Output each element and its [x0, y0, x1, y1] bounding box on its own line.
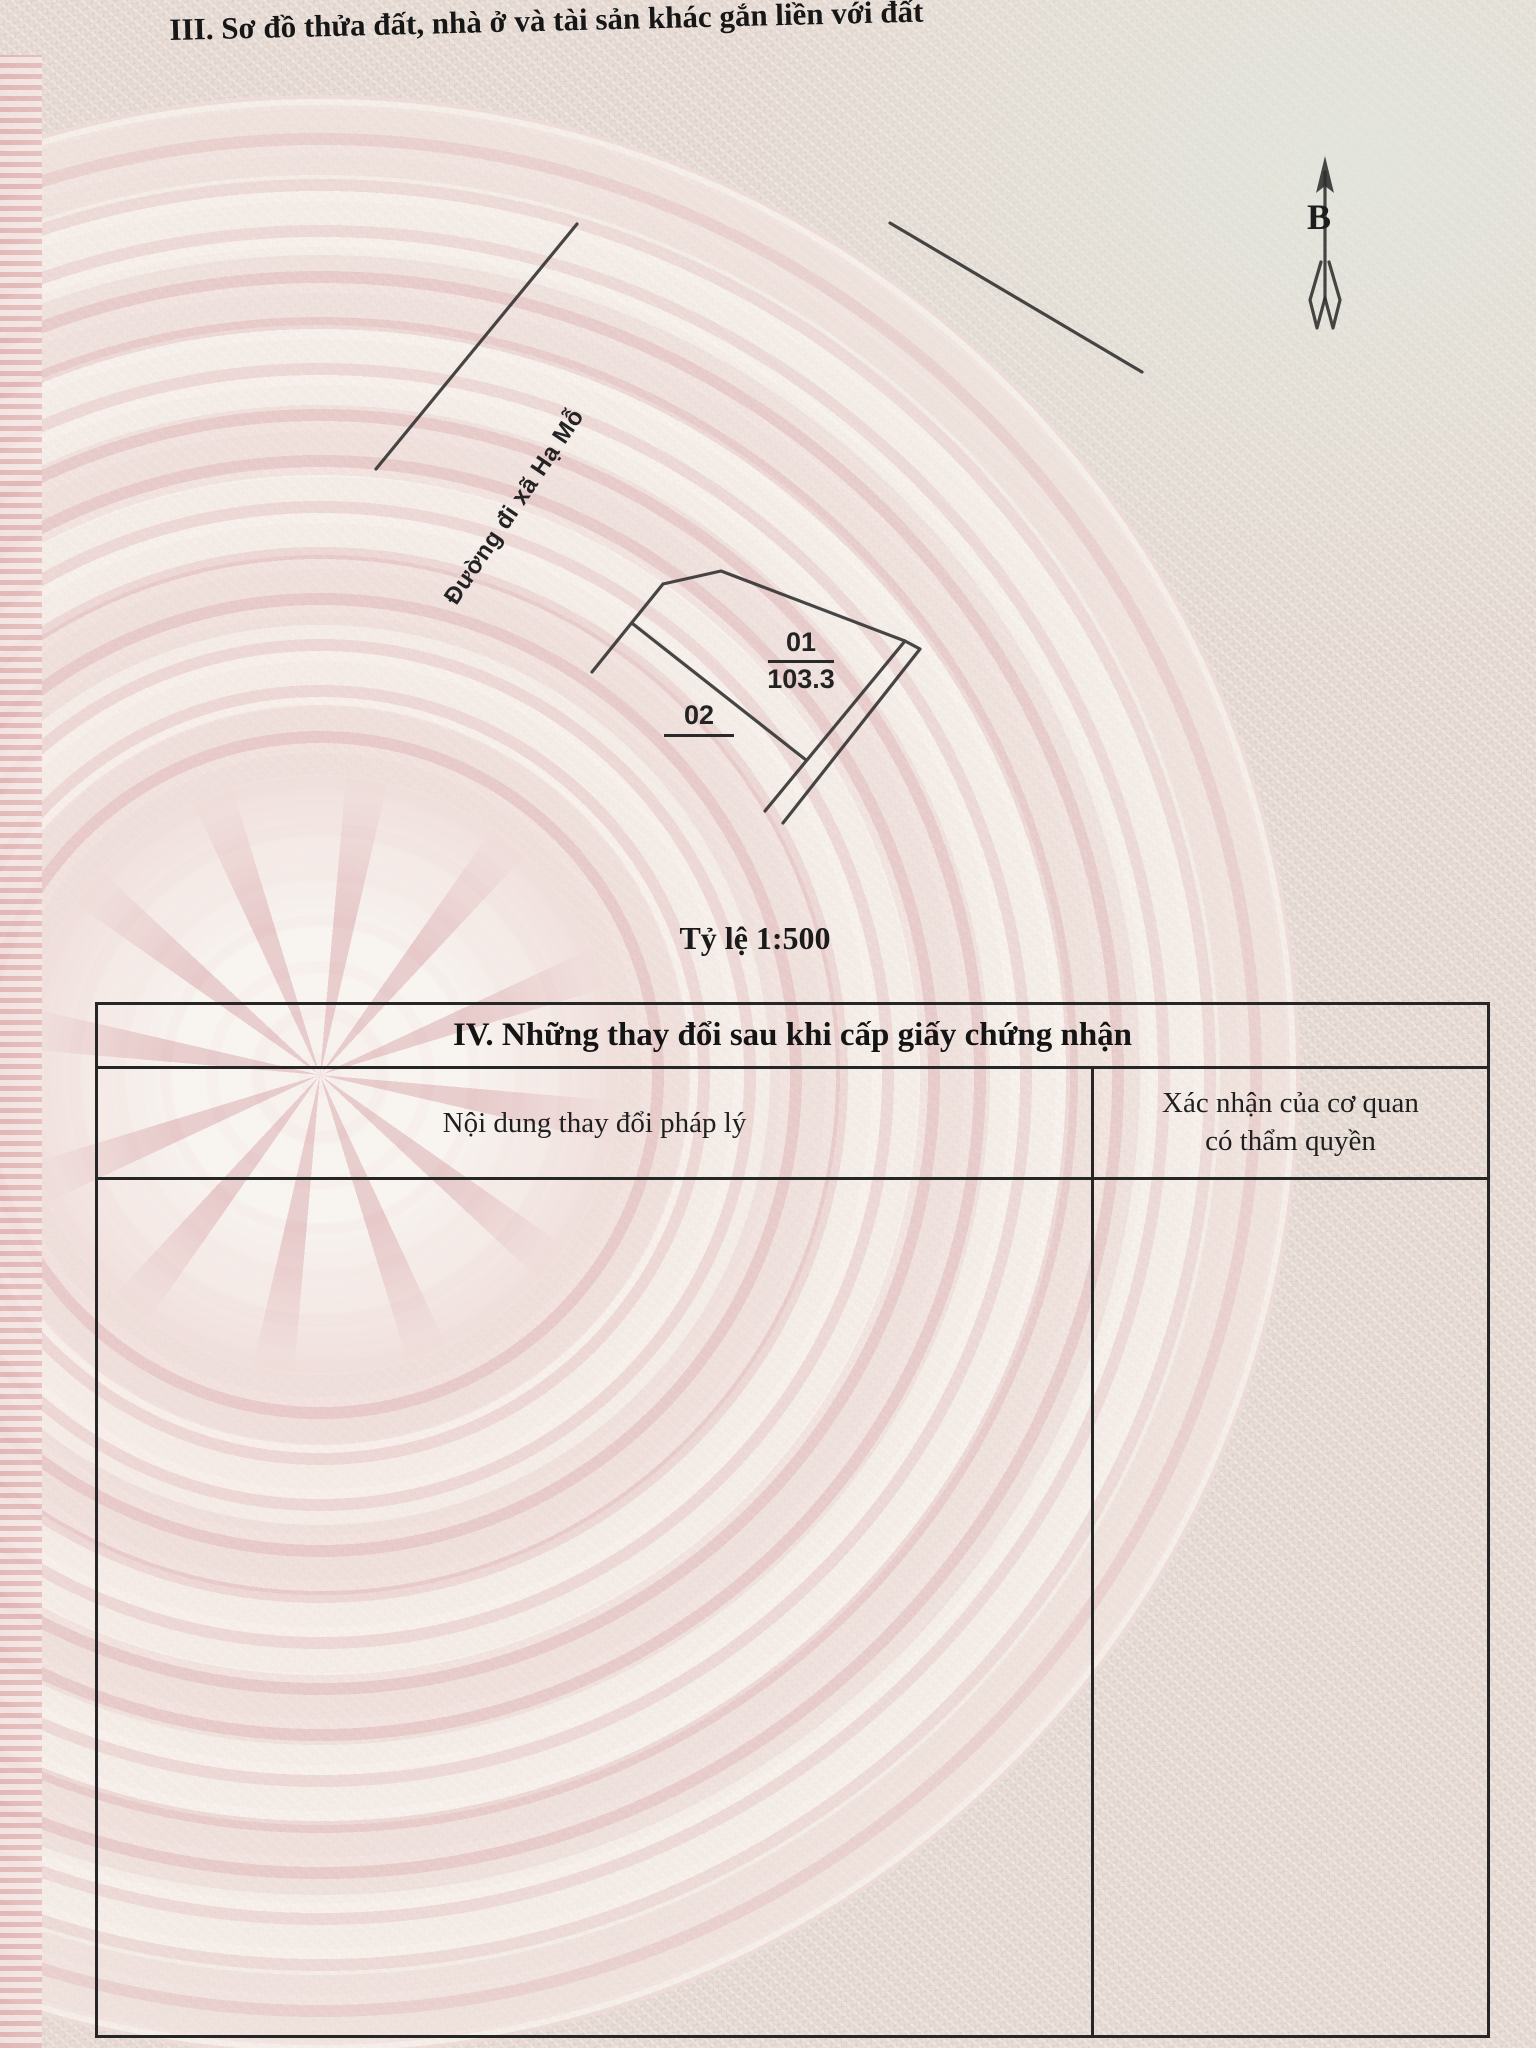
map-scale-label: Tỷ lệ 1:500 — [580, 920, 930, 957]
table-body-row — [98, 1180, 1487, 2035]
table-header-row: Nội dung thay đổi pháp lý Xác nhận của c… — [98, 1069, 1487, 1180]
col-header-legal-changes: Nội dung thay đổi pháp lý — [98, 1069, 1091, 1177]
authority-confirmation-empty-cell — [1091, 1180, 1487, 2035]
road-line-upper-right — [890, 223, 1142, 372]
section-iv-table: IV. Những thay đổi sau khi cấp giấy chứn… — [95, 1002, 1490, 2038]
col-header-authority-line1: Xác nhận của cơ quan — [1162, 1085, 1419, 1123]
north-direction-label: B — [1307, 196, 1331, 238]
col-header-authority-line2: có thẩm quyền — [1205, 1123, 1376, 1161]
parcel-01-label: 01 103.3 — [759, 628, 843, 694]
section-iv-heading: IV. Những thay đổi sau khi cấp giấy chứn… — [98, 1005, 1487, 1069]
legal-changes-empty-cell — [98, 1180, 1091, 2035]
col-header-authority-confirmation: Xác nhận của cơ quan có thẩm quyền — [1091, 1069, 1487, 1177]
land-certificate-page: III. Sơ đồ thửa đất, nhà ở và tài sản kh… — [0, 0, 1536, 2048]
parcel-02-label: 02 — [664, 700, 734, 737]
parcel-boundary-lines — [592, 571, 920, 823]
parcel-01-area: 103.3 — [759, 663, 843, 695]
parcel-01-number: 01 — [768, 628, 834, 663]
